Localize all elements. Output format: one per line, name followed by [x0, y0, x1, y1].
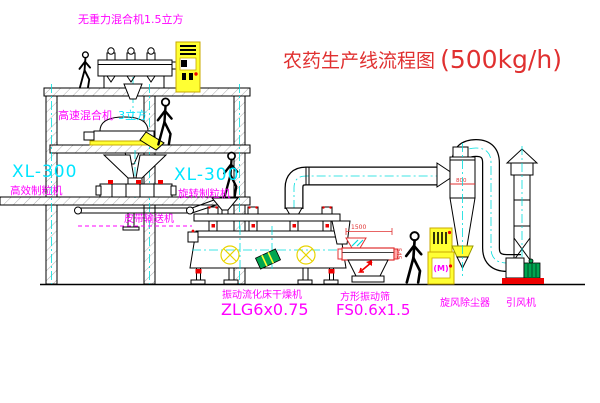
- indicator-light: [194, 72, 197, 75]
- label-dryer-model: ZLG6x0.75: [221, 300, 309, 319]
- floor-slab-top: [44, 88, 250, 96]
- sieve-dim-height: 545: [395, 248, 402, 260]
- label-granulator-center-model: XL-300: [174, 165, 239, 185]
- sieve-dim-length: 1500: [351, 224, 366, 231]
- label-cyclone: 旋风除尘器: [440, 296, 490, 309]
- label-fan: 引风机: [506, 296, 536, 309]
- title-text: 农药生产线流程图: [283, 50, 435, 72]
- control-cabinet-top: [176, 42, 200, 92]
- person-figure: [158, 98, 172, 144]
- mixer-discharge-cone: [124, 84, 142, 99]
- fan-base: [502, 278, 544, 284]
- title-capacity: (500kg/h): [440, 45, 562, 74]
- granulator-machine: [96, 180, 176, 197]
- person-figure: [406, 232, 421, 282]
- cyclone-dimension-text: 800: [456, 178, 467, 184]
- label-granulator-left-name: 高效制粒机: [10, 184, 63, 197]
- person-figure: [79, 52, 90, 88]
- fluid-bed-dryer: [188, 198, 350, 284]
- exhaust-duct-main: [286, 163, 452, 222]
- motor-symbol-label: (M): [433, 264, 448, 273]
- control-cabinet-dryer: (M): [428, 228, 454, 284]
- label-sieve-model: FS0.6x1.5: [336, 301, 410, 319]
- cad-flow-diagram: (M) 800: [0, 0, 600, 403]
- label-belt-conveyor: 皮带输送机: [124, 212, 174, 225]
- induced-draft-fan: [502, 258, 544, 284]
- diagram-canvas: (M) 800: [0, 0, 600, 403]
- hood-body-connectors: [209, 221, 331, 231]
- label-granulator-left-model: XL-300: [12, 162, 77, 182]
- diagram-title: 农药生产线流程图 (500kg/h): [283, 45, 562, 74]
- label-high-speed-mixer: 高速混合机 3立方: [58, 104, 147, 123]
- label-granulator-center-name: 旋转制粒机: [178, 187, 231, 200]
- dryer-legs: [191, 268, 338, 284]
- label-gravity-mixer: 无重力混合机1.5立方: [78, 12, 184, 26]
